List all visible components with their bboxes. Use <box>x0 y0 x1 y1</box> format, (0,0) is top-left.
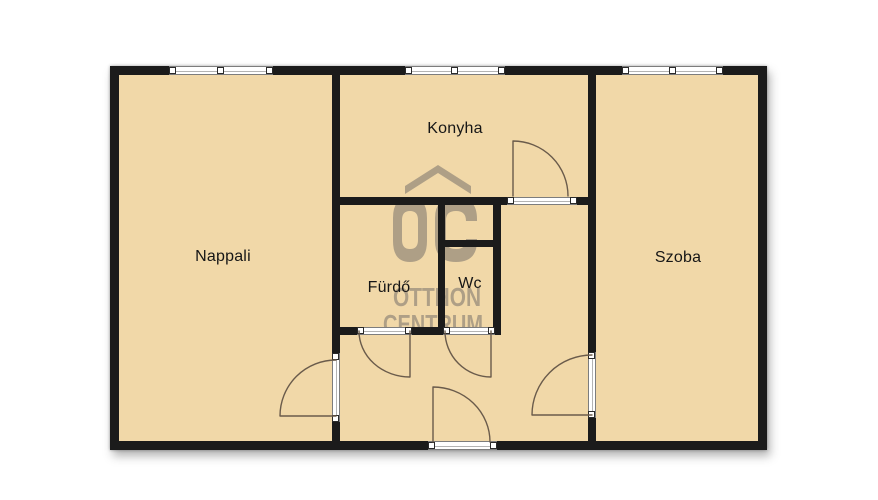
wall-furdo-wc-divider <box>438 205 445 335</box>
wall-konyha-south-right <box>577 197 588 205</box>
window-frame-end <box>622 67 629 74</box>
wall-outer-right <box>758 66 767 450</box>
door-frame-line <box>358 331 411 332</box>
wall-nappali-east-lower <box>332 422 340 441</box>
door-frame-end <box>357 327 364 334</box>
room-label-szoba: Szoba <box>655 249 701 267</box>
wall-konyha-south-left <box>340 197 507 205</box>
door-frame-nappali <box>332 353 340 422</box>
door-frame-szoba <box>588 352 596 418</box>
window-szoba <box>622 66 723 75</box>
door-frame-end <box>428 442 435 449</box>
wall-wc-east <box>493 205 501 335</box>
window-frame-end <box>169 67 176 74</box>
door-frame-entrance <box>428 441 497 450</box>
window-frame-end <box>266 67 273 74</box>
floorplan-canvas: OC OTTHON CENTRUM <box>0 0 878 500</box>
door-frame-line <box>508 201 576 202</box>
window-frame-end <box>405 67 412 74</box>
door-frame-line <box>336 354 337 421</box>
door-frame-end <box>488 327 495 334</box>
door-frame-line <box>429 446 496 447</box>
window-frame-end <box>498 67 505 74</box>
door-frame-line <box>592 353 593 417</box>
door-frame-line <box>444 331 494 332</box>
door-frame-wc <box>443 327 495 335</box>
window-frame-mid <box>451 67 458 74</box>
room-label-wc: Wc <box>458 275 482 293</box>
room-label-konyha: Konyha <box>427 120 482 138</box>
wall-szoba-west-lower <box>588 418 596 441</box>
window-frame-mid <box>669 67 676 74</box>
door-frame-end <box>588 352 595 359</box>
wall-outer-left <box>110 66 119 450</box>
wall-furdo-south-mid <box>412 327 443 335</box>
door-frame-konyha <box>507 197 577 205</box>
door-frame-end <box>490 442 497 449</box>
door-frame-end <box>570 197 577 204</box>
door-frame-end <box>405 327 412 334</box>
door-frame-end <box>332 415 339 422</box>
wall-furdo-south-left <box>340 327 357 335</box>
door-frame-furdo <box>357 327 412 335</box>
window-nappali <box>169 66 273 75</box>
window-frame-end <box>716 67 723 74</box>
door-frame-end <box>507 197 514 204</box>
room-label-furdo: Fürdő <box>368 279 411 297</box>
wall-nappali-east-upper <box>332 75 340 353</box>
door-frame-end <box>443 327 450 334</box>
wall-wc-north <box>445 240 493 247</box>
wall-szoba-west-upper <box>588 75 596 352</box>
door-frame-end <box>332 353 339 360</box>
window-frame-mid <box>217 67 224 74</box>
room-label-nappali: Nappali <box>195 248 251 266</box>
window-konyha <box>405 66 505 75</box>
door-frame-end <box>588 411 595 418</box>
